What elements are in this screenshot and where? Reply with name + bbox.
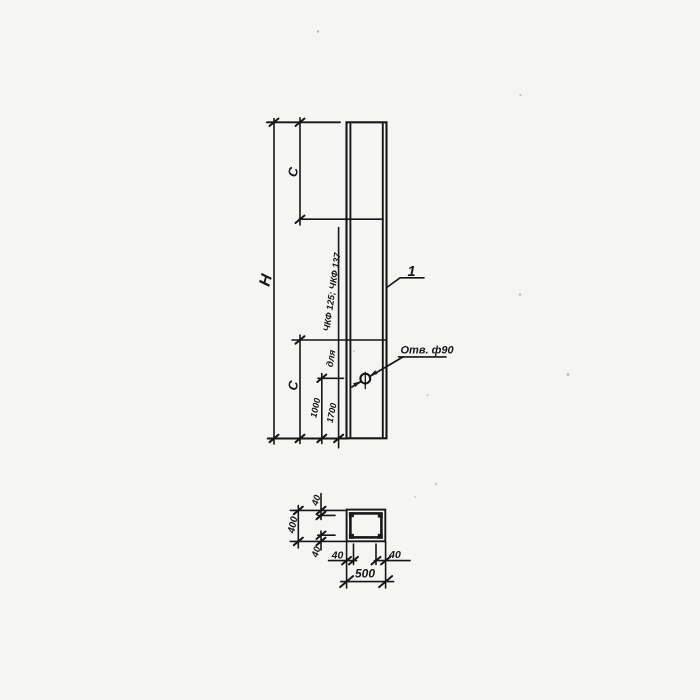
svg-text:1: 1 bbox=[408, 264, 416, 280]
svg-text:500: 500 bbox=[355, 567, 375, 581]
svg-text:40: 40 bbox=[331, 550, 344, 562]
svg-text:40: 40 bbox=[388, 549, 401, 561]
svg-text:Отв. ф90: Отв. ф90 bbox=[401, 345, 455, 357]
